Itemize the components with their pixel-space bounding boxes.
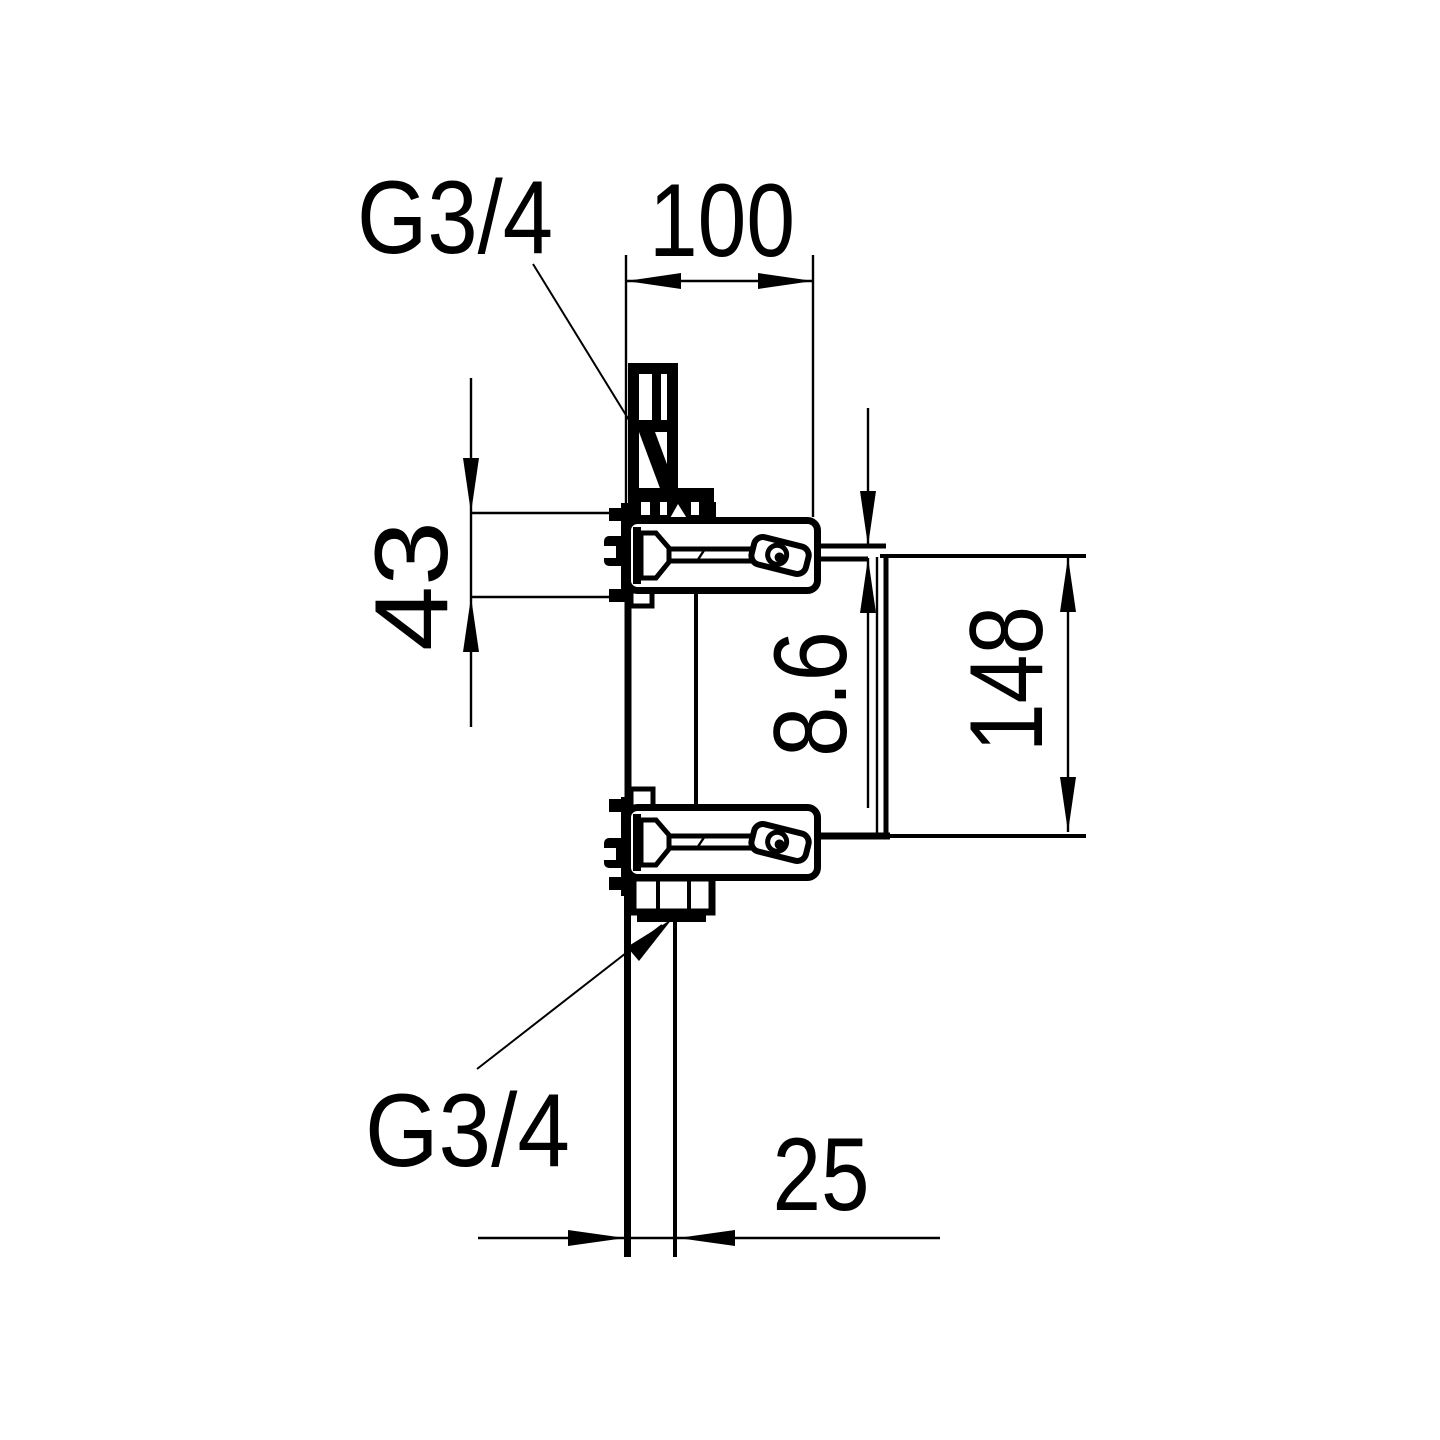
bottom-valve-body: [628, 808, 891, 878]
dimension-8-6: 8.6: [753, 408, 876, 808]
dim-25-label: 25: [773, 1117, 870, 1233]
dim-8-6-label: 8.6: [753, 631, 869, 757]
thread-top-label: G3/4: [357, 160, 553, 276]
engineering-drawing: 100 43 8.6 148 25 G3/4: [0, 0, 1440, 1440]
dimension-43: 43: [354, 378, 618, 727]
bottom-union-nut: [633, 878, 712, 922]
dim-100-label: 100: [649, 163, 795, 279]
thread-bottom-label: G3/4: [365, 1073, 570, 1189]
callout-thread-top: G3/4: [357, 160, 629, 420]
top-valve-body: [628, 521, 887, 591]
wall-plane: [877, 556, 886, 837]
top-inlet-pipe: [628, 363, 714, 502]
valve-connector: [628, 591, 696, 810]
dim-43-label: 43: [354, 521, 470, 651]
dim-148-label: 148: [949, 606, 1065, 752]
